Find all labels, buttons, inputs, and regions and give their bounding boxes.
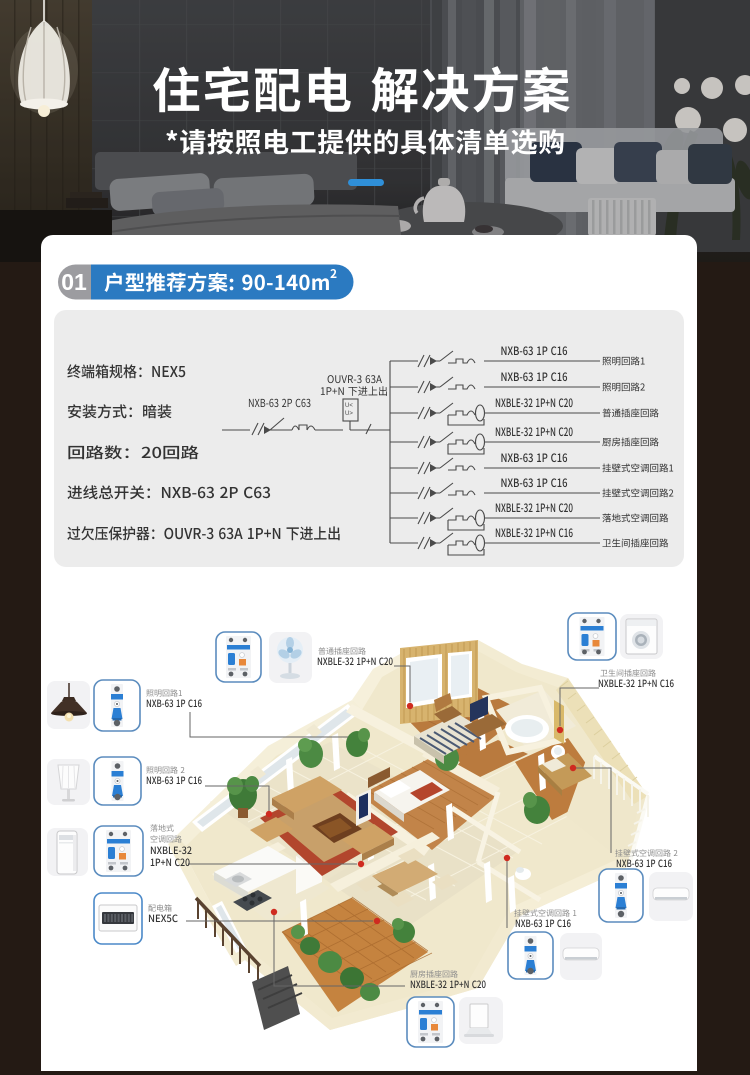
svg-text:U>: U>	[345, 411, 353, 417]
svg-text:U<: U<	[345, 403, 353, 409]
svg-text:01: 01	[61, 269, 87, 295]
